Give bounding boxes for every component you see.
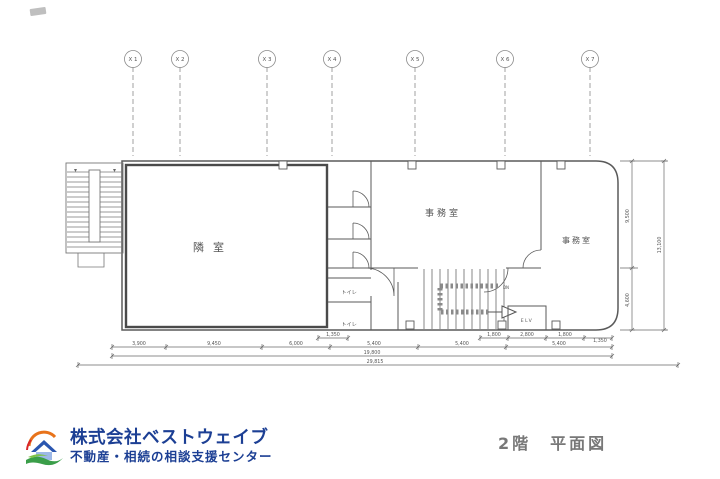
dimension-labels-right: 9,500 4,600 13,100 — [625, 209, 663, 307]
dim-right-lower: 4,600 — [625, 293, 631, 307]
dim-total: 29,815 — [367, 359, 384, 365]
room-label-toilet-lower: トイレ — [341, 322, 357, 328]
grid-axis-label-x5: X 5 — [410, 57, 420, 63]
external-staircase — [66, 163, 123, 267]
room-label-office-right: 事務室 — [562, 235, 592, 245]
stall-column — [328, 161, 371, 330]
grid-axis-label-x3: X 3 — [262, 57, 272, 63]
room-label-toilet-upper: トイレ — [341, 290, 357, 296]
grid-axis-label-x6: X 6 — [500, 57, 510, 63]
dim-span-0: 3,900 — [132, 341, 146, 347]
dim-span-4: 5,400 — [455, 341, 469, 347]
stair-direction-label: DN — [503, 285, 509, 290]
room-label-office-center: 事務室 — [425, 207, 461, 219]
company-tagline: 不動産・相続の相談支援センター — [70, 450, 273, 464]
dim-subtotal: 19,800 — [364, 350, 381, 356]
dim-span-3: 5,400 — [367, 341, 381, 347]
company-logo-icon — [24, 428, 64, 468]
plan-title: 2階 平面図 — [498, 430, 607, 454]
elevator-room: ELV — [508, 306, 546, 330]
room-label-elevator: ELV — [521, 318, 534, 324]
company-logo-text: 株式会社ベストウェイブ 不動産・相続の相談支援センター — [70, 428, 273, 465]
floor-plan-drawing: X 1 X 2 X 3 X 4 X 5 X 6 X 7 隣室 — [0, 0, 720, 415]
wall-columns — [279, 161, 565, 329]
room-label-adjacent: 隣室 — [193, 240, 233, 254]
dim-detail-3: 1,800 — [558, 332, 572, 338]
grid-axis-label-x7: X 7 — [585, 57, 595, 63]
grid-axis-label-x1: X 1 — [128, 57, 137, 63]
dim-right-total: 13,100 — [657, 237, 663, 254]
dimension-labels-bottom: 1,350 1,800 2,800 1,800 1,350 3,900 9,45… — [132, 332, 607, 365]
grid-axis-label-x4: X 4 — [327, 57, 337, 63]
dim-span-5: 5,400 — [552, 341, 566, 347]
grid-axis-labels: X 1 X 2 X 3 X 4 X 5 X 6 X 7 — [128, 57, 595, 63]
corridor-walls — [366, 268, 541, 330]
dim-detail-4: 1,350 — [593, 338, 607, 344]
scanned-floor-plan-page: X 1 X 2 X 3 X 4 X 5 X 6 X 7 隣室 — [0, 0, 720, 479]
company-name: 株式会社ベストウェイブ — [70, 428, 273, 448]
toilet-area: トイレ トイレ — [328, 278, 371, 328]
internal-staircase: DN — [424, 269, 516, 329]
offices: 事務室 事務室 — [425, 161, 592, 268]
dim-detail-2: 2,800 — [520, 332, 534, 338]
grid-axis-lines — [125, 51, 599, 157]
dim-span-1: 9,450 — [207, 341, 221, 347]
adjacent-room: 隣室 — [126, 165, 327, 327]
dim-detail-1: 1,800 — [487, 332, 501, 338]
dim-detail-0: 1,350 — [326, 332, 340, 338]
dim-right-upper: 9,500 — [625, 209, 631, 223]
company-logo: 株式会社ベストウェイブ 不動産・相続の相談支援センター — [24, 428, 273, 468]
dim-span-2: 6,000 — [289, 341, 303, 347]
grid-axis-label-x2: X 2 — [175, 57, 184, 63]
